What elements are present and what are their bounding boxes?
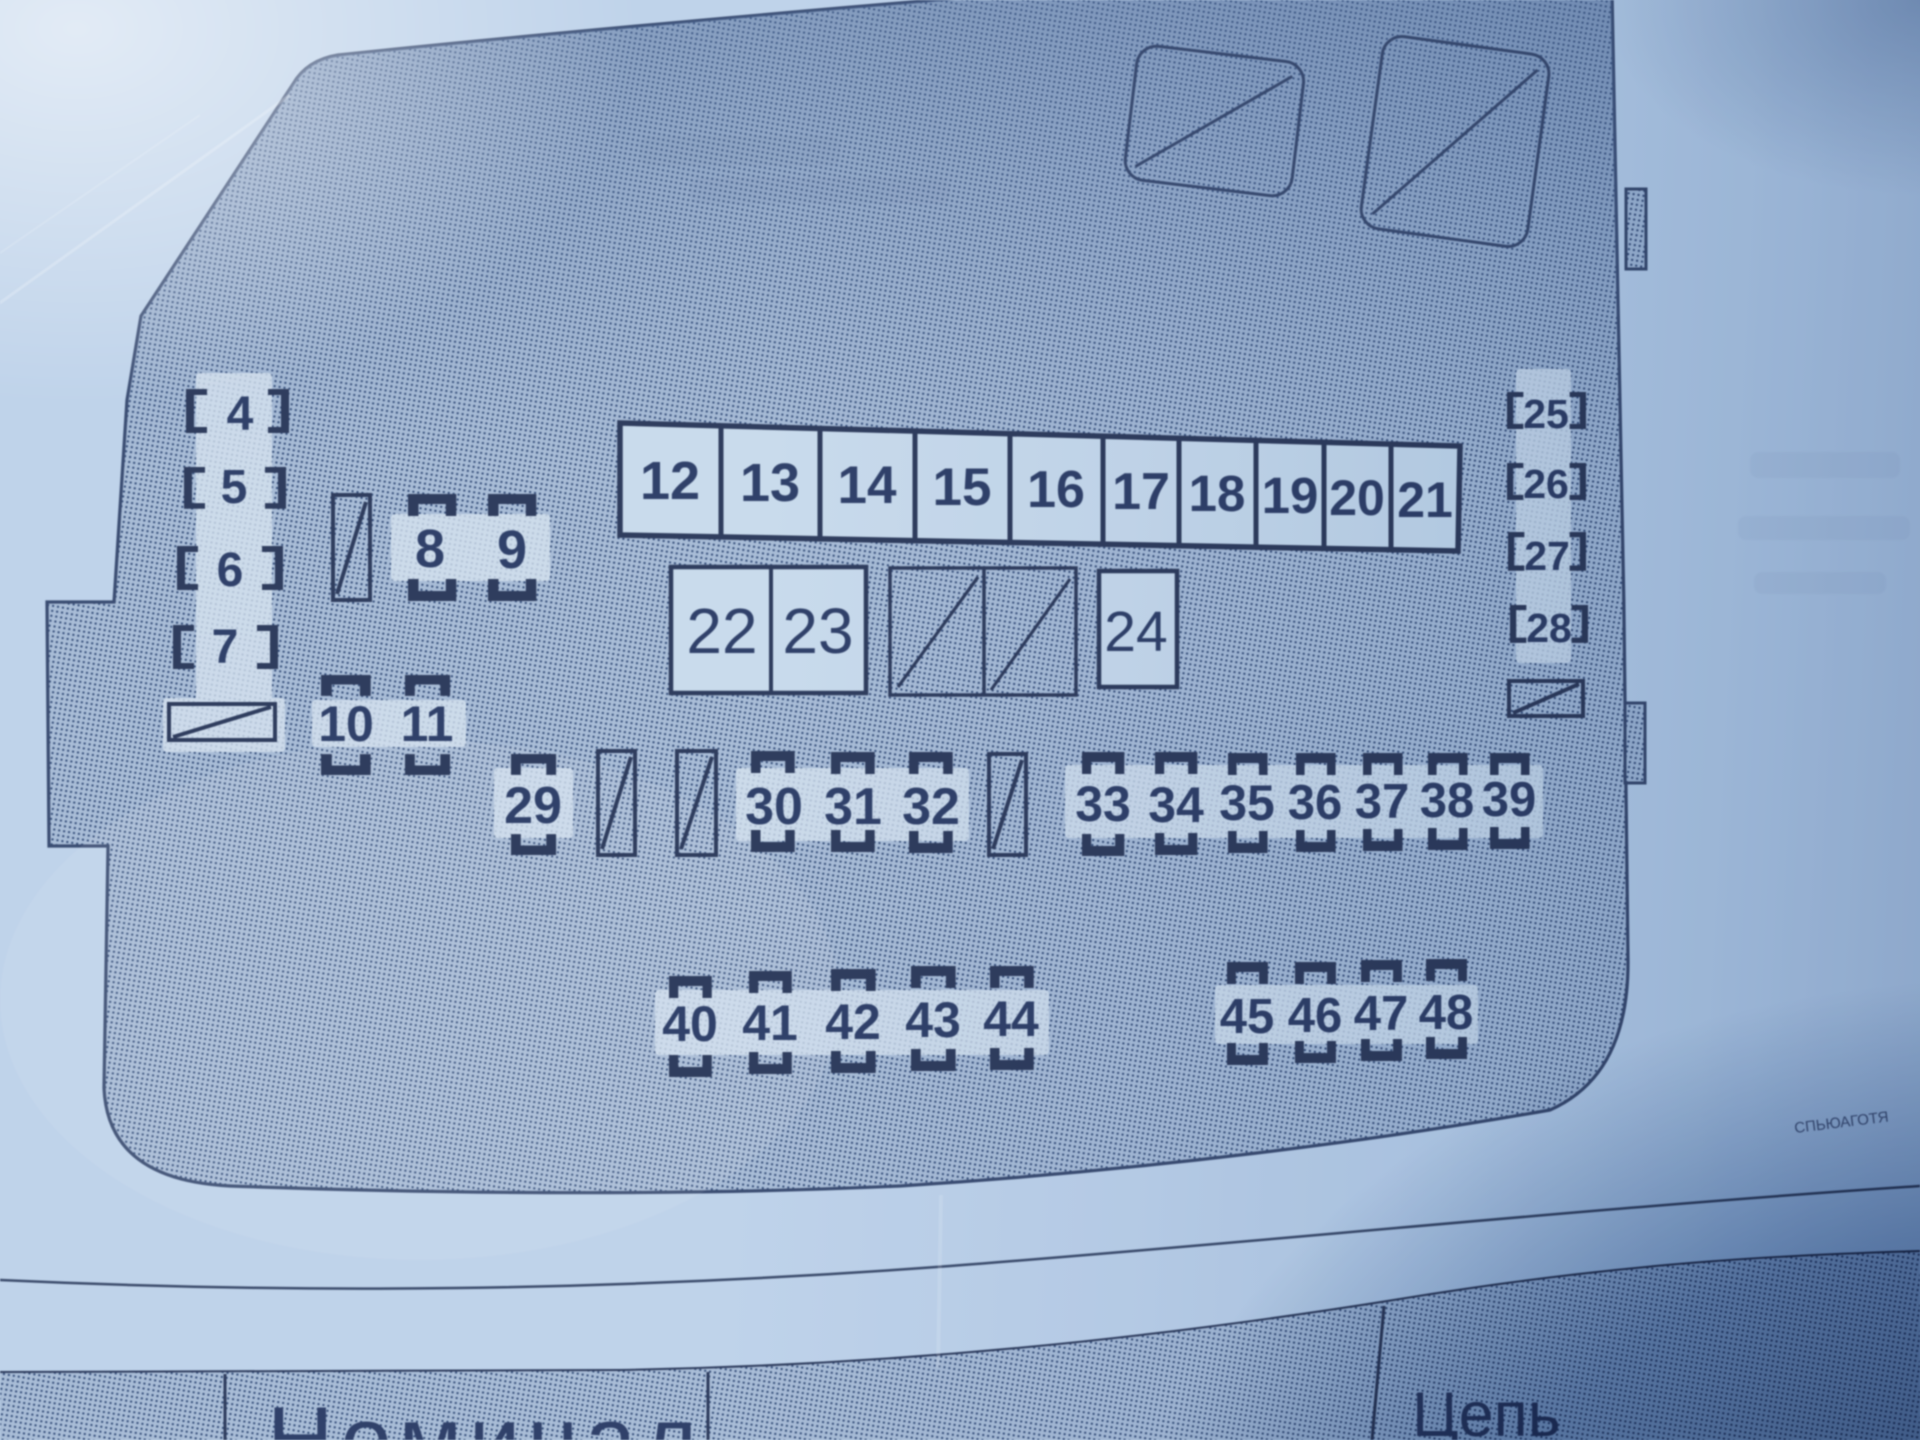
svg-text:5: 5 [221, 461, 248, 514]
svg-text:27: 27 [1524, 533, 1570, 579]
svg-text:11: 11 [401, 696, 454, 752]
svg-text:45: 45 [1220, 990, 1275, 1044]
svg-text:Цепь: Цепь [1412, 1380, 1561, 1440]
svg-text:4: 4 [227, 388, 254, 441]
svg-text:23: 23 [782, 595, 853, 667]
svg-text:6: 6 [217, 544, 244, 597]
svg-text:21: 21 [1397, 472, 1453, 528]
svg-text:СПЬЮАГОТЯ: СПЬЮАГОТЯ [1793, 1109, 1889, 1137]
svg-text:48: 48 [1419, 986, 1474, 1040]
svg-text:36: 36 [1288, 776, 1343, 830]
svg-text:34: 34 [1148, 777, 1204, 833]
svg-text:15: 15 [933, 458, 992, 517]
svg-text:19: 19 [1262, 467, 1319, 524]
svg-text:9: 9 [497, 520, 527, 580]
svg-text:7: 7 [212, 621, 239, 674]
svg-text:46: 46 [1288, 989, 1343, 1043]
svg-text:43: 43 [905, 992, 961, 1048]
svg-text:32: 32 [902, 778, 960, 836]
svg-text:37: 37 [1355, 775, 1410, 829]
svg-text:33: 33 [1075, 776, 1131, 832]
svg-text:14: 14 [838, 456, 897, 515]
svg-text:47: 47 [1354, 987, 1409, 1041]
svg-text:Номинал: Номинал [267, 1389, 704, 1440]
svg-text:8: 8 [415, 519, 445, 579]
svg-text:39: 39 [1482, 773, 1537, 827]
svg-text:24: 24 [1104, 600, 1167, 664]
svg-text:26: 26 [1523, 461, 1569, 507]
svg-text:40: 40 [662, 996, 718, 1052]
svg-text:29: 29 [504, 777, 562, 835]
svg-text:42: 42 [825, 994, 881, 1050]
svg-text:17: 17 [1112, 463, 1170, 521]
svg-text:30: 30 [745, 778, 803, 836]
svg-text:35: 35 [1219, 775, 1275, 831]
svg-text:28: 28 [1526, 605, 1572, 651]
svg-text:10: 10 [318, 696, 374, 752]
svg-text:13: 13 [740, 453, 800, 513]
svg-text:38: 38 [1420, 774, 1475, 828]
svg-text:44: 44 [983, 991, 1039, 1047]
svg-text:22: 22 [686, 595, 757, 667]
svg-text:25: 25 [1523, 391, 1569, 437]
svg-text:18: 18 [1189, 465, 1246, 522]
svg-text:16: 16 [1027, 461, 1085, 519]
svg-text:20: 20 [1329, 470, 1385, 526]
svg-text:31: 31 [824, 778, 882, 836]
svg-text:41: 41 [742, 995, 798, 1051]
svg-text:12: 12 [640, 451, 700, 511]
